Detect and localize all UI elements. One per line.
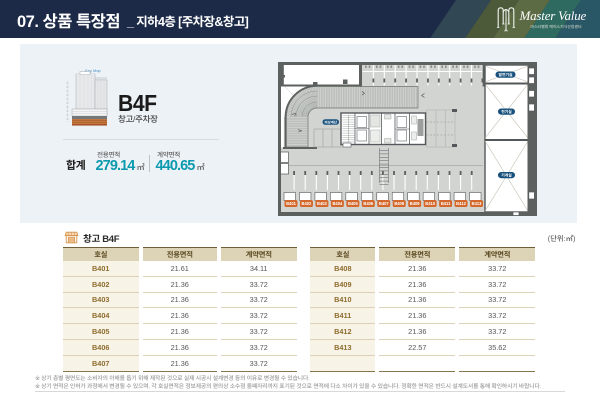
svg-text:비상계단: 비상계단: [325, 121, 338, 125]
svg-text:B408: B408: [394, 201, 405, 206]
svg-text:B410: B410: [425, 201, 436, 206]
svg-text:B406: B406: [363, 201, 374, 206]
svg-text:B401: B401: [286, 201, 297, 206]
svg-text:B409: B409: [410, 201, 421, 206]
svg-text:B404: B404: [332, 201, 343, 206]
svg-text:B405: B405: [348, 201, 359, 206]
svg-text:B411: B411: [441, 201, 451, 206]
svg-text:B407: B407: [379, 201, 390, 206]
svg-text:마스터밸류 메이스지식산업센터: 마스터밸류 메이스지식산업센터: [530, 24, 582, 29]
svg-text:B412: B412: [456, 201, 467, 206]
svg-text:Master Value: Master Value: [519, 8, 587, 23]
svg-text:B403: B403: [317, 201, 328, 206]
svg-text:발전기실: 발전기실: [499, 72, 513, 77]
svg-text:전기실: 전기실: [501, 109, 512, 114]
svg-text:기계실: 기계실: [501, 173, 512, 178]
svg-text:B402: B402: [302, 201, 313, 206]
svg-text:B413: B413: [472, 201, 483, 206]
